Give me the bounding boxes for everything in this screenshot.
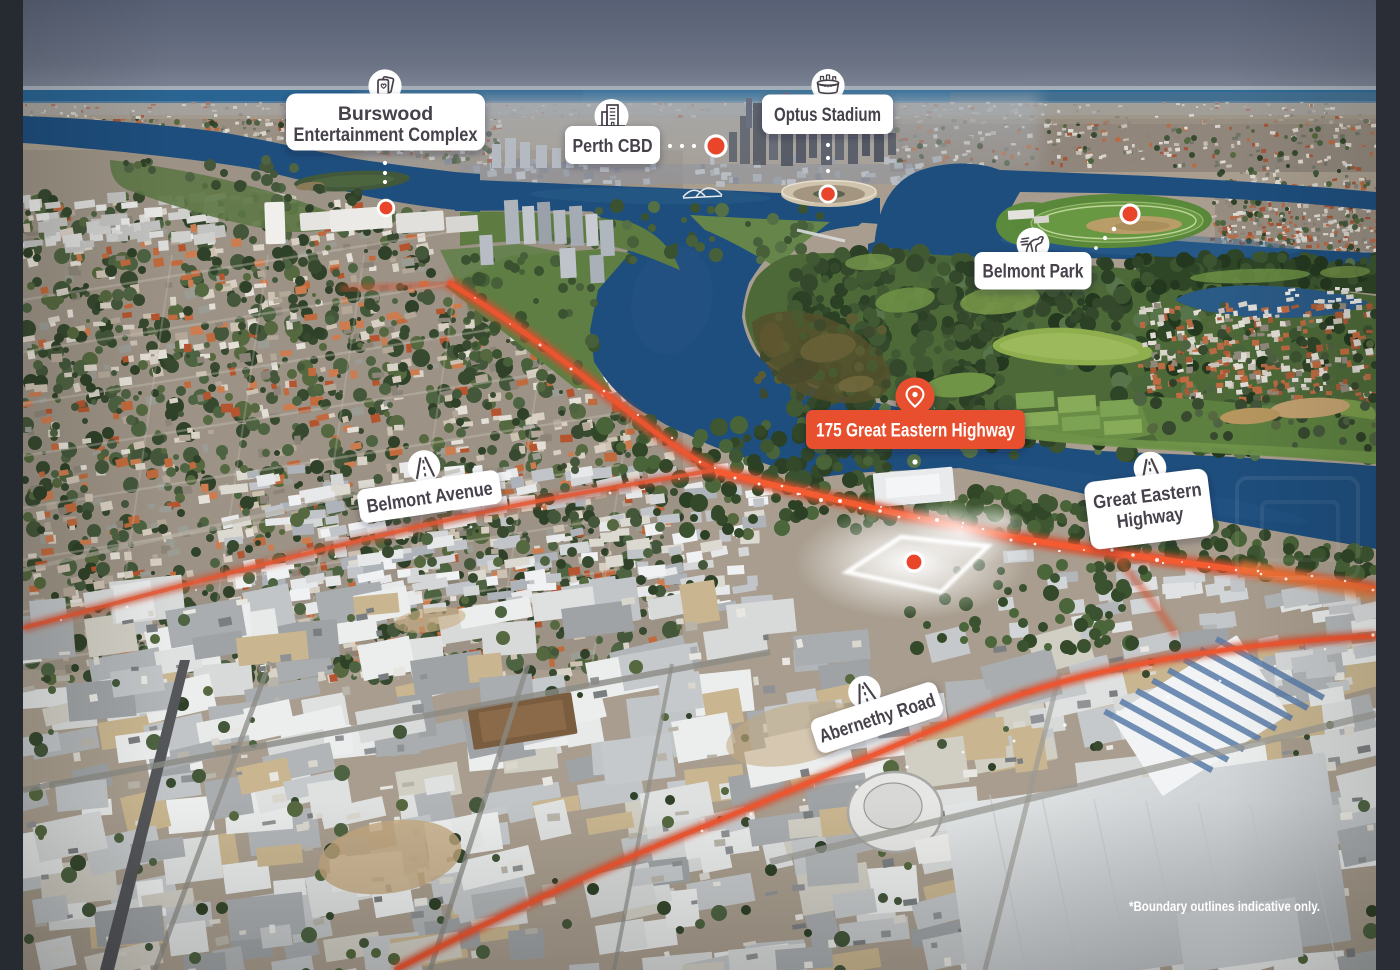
- svg-text:175 Great Eastern Highway: 175 Great Eastern Highway: [816, 420, 1015, 442]
- svg-text:Entertainment Complex: Entertainment Complex: [294, 124, 478, 146]
- svg-text:Optus Stadium: Optus Stadium: [774, 105, 881, 126]
- svg-text:Perth CBD: Perth CBD: [573, 135, 653, 156]
- svg-text:Belmont Park: Belmont Park: [983, 262, 1084, 283]
- svg-text:Burswood: Burswood: [338, 103, 433, 125]
- svg-text:*Boundary outlines indicative: *Boundary outlines indicative only.: [1129, 899, 1320, 914]
